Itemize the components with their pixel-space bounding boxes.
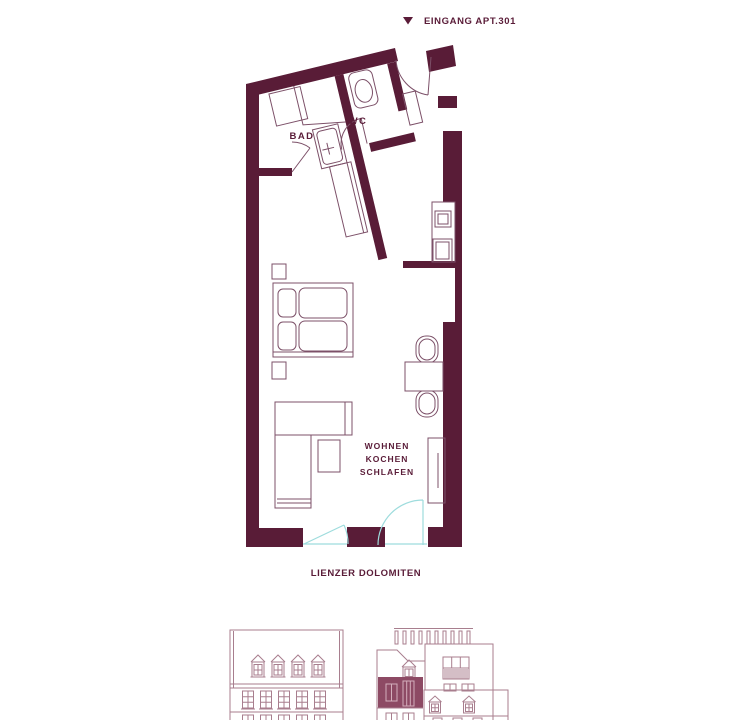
hall-sideboard: [403, 91, 423, 125]
nightstand: [272, 264, 286, 279]
window-swing-left: [303, 525, 348, 544]
dormer-windows: [251, 655, 326, 677]
wc-bottom-wall: [369, 132, 416, 151]
svg-text:SCHLAFEN: SCHLAFEN: [360, 467, 414, 477]
hall-dividing-wall: [335, 74, 388, 260]
caption-text: LIENZER DOLOMITEN: [311, 568, 421, 579]
room-label-bad: BAD: [289, 131, 314, 142]
bottom-wall-pier: [347, 527, 385, 547]
double-bed: [273, 283, 353, 357]
right-wall-upper: [443, 131, 462, 202]
coffee-table: [318, 440, 340, 472]
french-door-swing: [378, 500, 427, 545]
left-wall: [246, 84, 259, 547]
shower-tray: [312, 124, 347, 169]
top-wall: [246, 48, 398, 97]
living-label: WOHNEN KOCHEN SCHLAFEN: [360, 441, 414, 477]
nightstand: [272, 362, 286, 379]
roof-balustrade: [394, 629, 473, 645]
apartment-highlight: [378, 677, 423, 708]
bad-door-wall-stub: [259, 168, 292, 176]
entrance-label-text: EINGANG APT.301: [424, 16, 516, 27]
bottom-right-corner: [428, 527, 462, 547]
dining-table: [405, 362, 443, 391]
window-row: [243, 715, 326, 720]
annex-wing: [424, 690, 508, 720]
window-row: [241, 691, 327, 709]
dining-set: [405, 336, 443, 417]
balcony: [443, 657, 469, 679]
pillow: [278, 289, 296, 317]
floor-plan-page: EINGANG APT.301: [0, 0, 730, 720]
kitchen-unit: [432, 202, 455, 262]
duvet: [299, 321, 347, 351]
room-label-wc: WC: [349, 116, 368, 127]
sideboard: [428, 438, 445, 503]
right-wall-lower: [443, 322, 462, 527]
annex-dormer: [463, 696, 476, 713]
ground-floor-windows: [386, 713, 414, 720]
duvet: [299, 288, 347, 318]
bottom-left-corner: [246, 528, 303, 547]
pillow: [278, 322, 296, 350]
toilet: [347, 69, 379, 110]
right-wall-segment: [438, 96, 457, 108]
tower-dormer: [402, 660, 416, 678]
svg-text:KOCHEN: KOCHEN: [366, 454, 409, 464]
entrance-label: EINGANG APT.301: [403, 16, 516, 27]
triangle-down-icon: [403, 17, 413, 25]
building-elevation-front: [230, 630, 343, 720]
annex-dormer: [429, 696, 442, 713]
building-elevation-side: [377, 629, 508, 720]
svg-text:WOHNEN: WOHNEN: [365, 441, 410, 451]
washing-machine: [269, 87, 308, 127]
floor-plan-drawing: EINGANG APT.301: [0, 0, 730, 720]
bad-door-swing: [292, 142, 310, 172]
